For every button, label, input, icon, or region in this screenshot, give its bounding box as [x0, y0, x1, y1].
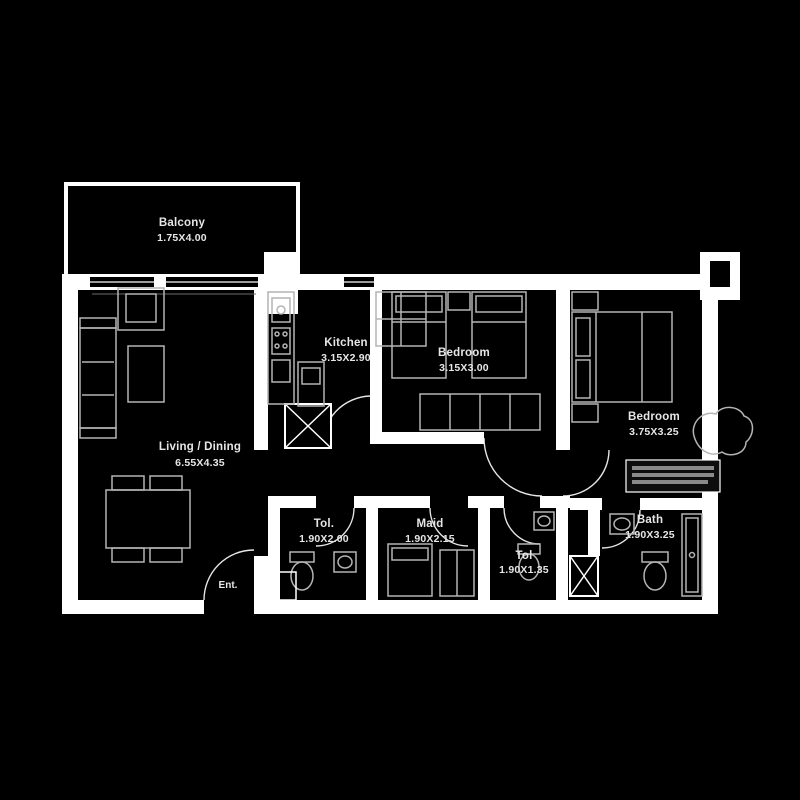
entrance-label: Ent.: [219, 580, 238, 591]
background: [0, 0, 800, 800]
tol2-dims: 1.90X1.35: [499, 564, 549, 576]
note-box-text-line: [632, 466, 714, 470]
wall-bedroom2-stub: [556, 406, 570, 450]
bedroom2-dims: 3.75X3.25: [629, 426, 679, 438]
wall-maid-tol2: [478, 508, 490, 600]
tol2-label: Tol: [516, 550, 533, 562]
wall-right: [702, 274, 718, 614]
note-box-text-line: [632, 473, 714, 477]
maid-label: Maid: [417, 518, 444, 530]
kitchen-label: Kitchen: [324, 337, 368, 349]
wall-bath-top-right: [640, 498, 718, 510]
balcony-dims: 1.75X4.00: [157, 232, 207, 244]
bath-dims: 1.90X3.25: [625, 529, 675, 541]
wall-corridor-seg4: [540, 496, 570, 508]
floorplan-svg: Balcony 1.75X4.00 Living / Dining 6.55X4…: [0, 0, 800, 800]
living-dining-dims: 6.55X4.35: [175, 457, 225, 469]
wall-corridor-seg1: [268, 496, 316, 508]
wall-tol2-right: [556, 508, 568, 600]
balcony-label: Balcony: [159, 217, 206, 229]
bedroom1-label: Bedroom: [438, 347, 490, 359]
column-hole: [710, 261, 730, 287]
wall-bedroom-divider: [556, 274, 570, 406]
bedroom1-dims: 3.15X3.00: [439, 362, 489, 374]
wall-bottom-living: [62, 600, 204, 614]
bedroom2-label: Bedroom: [628, 411, 680, 423]
wall-tol1-maid: [366, 508, 378, 600]
living-dining-label: Living / Dining: [159, 441, 241, 453]
wall-corridor-seg2: [354, 496, 430, 508]
tol1-label: Tol.: [314, 518, 334, 530]
kitchen-dims: 3.15X2.90: [321, 352, 371, 364]
wall-bedroom1-bottom: [370, 432, 484, 444]
column-top-left: [264, 252, 298, 314]
wall-corridor-seg3: [468, 496, 504, 508]
wall-left: [62, 274, 78, 614]
bath-label: Bath: [637, 514, 663, 526]
tol1-dims: 1.90X2.00: [299, 533, 349, 545]
note-box: [626, 460, 720, 492]
note-box-text-line: [632, 480, 708, 484]
wall-bath-top-left: [570, 498, 602, 510]
wall-bath-left: [588, 510, 600, 556]
wall-tol1-left: [268, 508, 280, 600]
wall-kitchen-left: [254, 290, 268, 450]
floorplan-image: Balcony 1.75X4.00 Living / Dining 6.55X4…: [0, 0, 800, 800]
wall-bottom-main: [254, 600, 718, 614]
maid-dims: 1.90X2.15: [405, 533, 455, 545]
